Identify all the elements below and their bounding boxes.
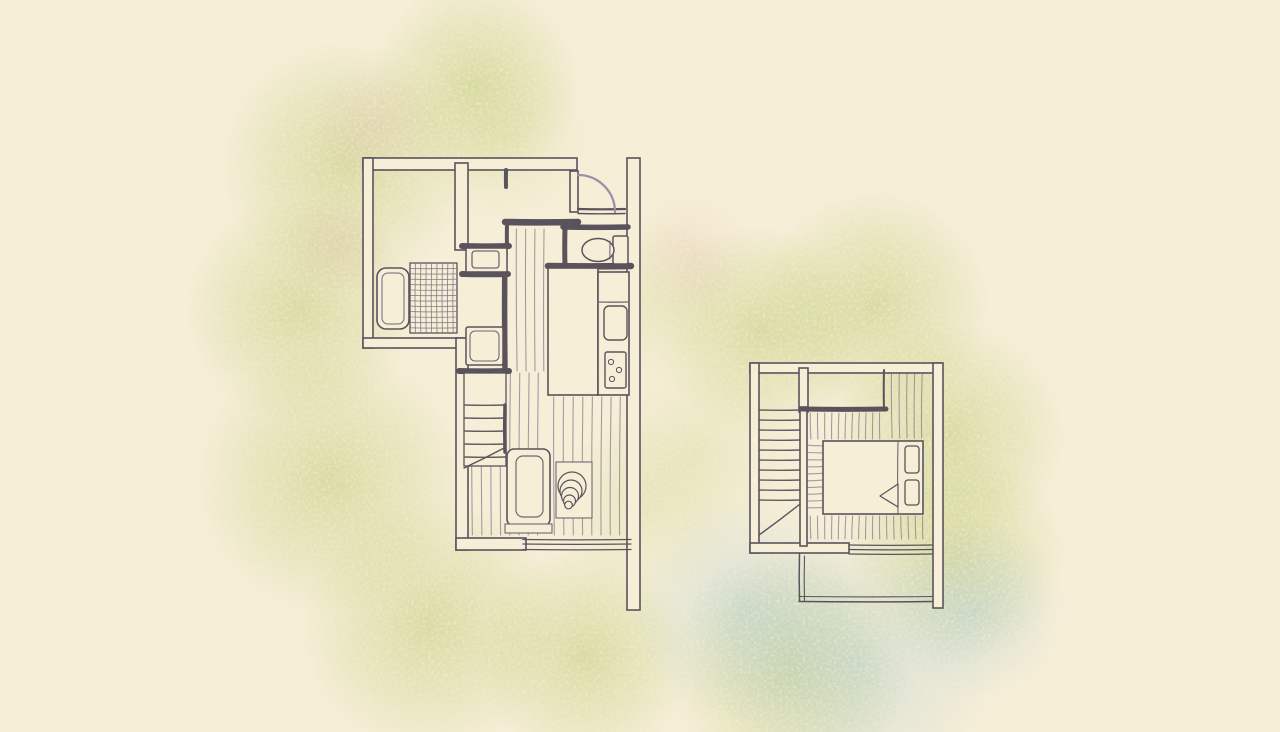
paper-grain-texture	[0, 0, 1280, 732]
scanned-floor-plan-page	[0, 0, 1280, 732]
floor-plan-canvas	[0, 0, 1280, 732]
